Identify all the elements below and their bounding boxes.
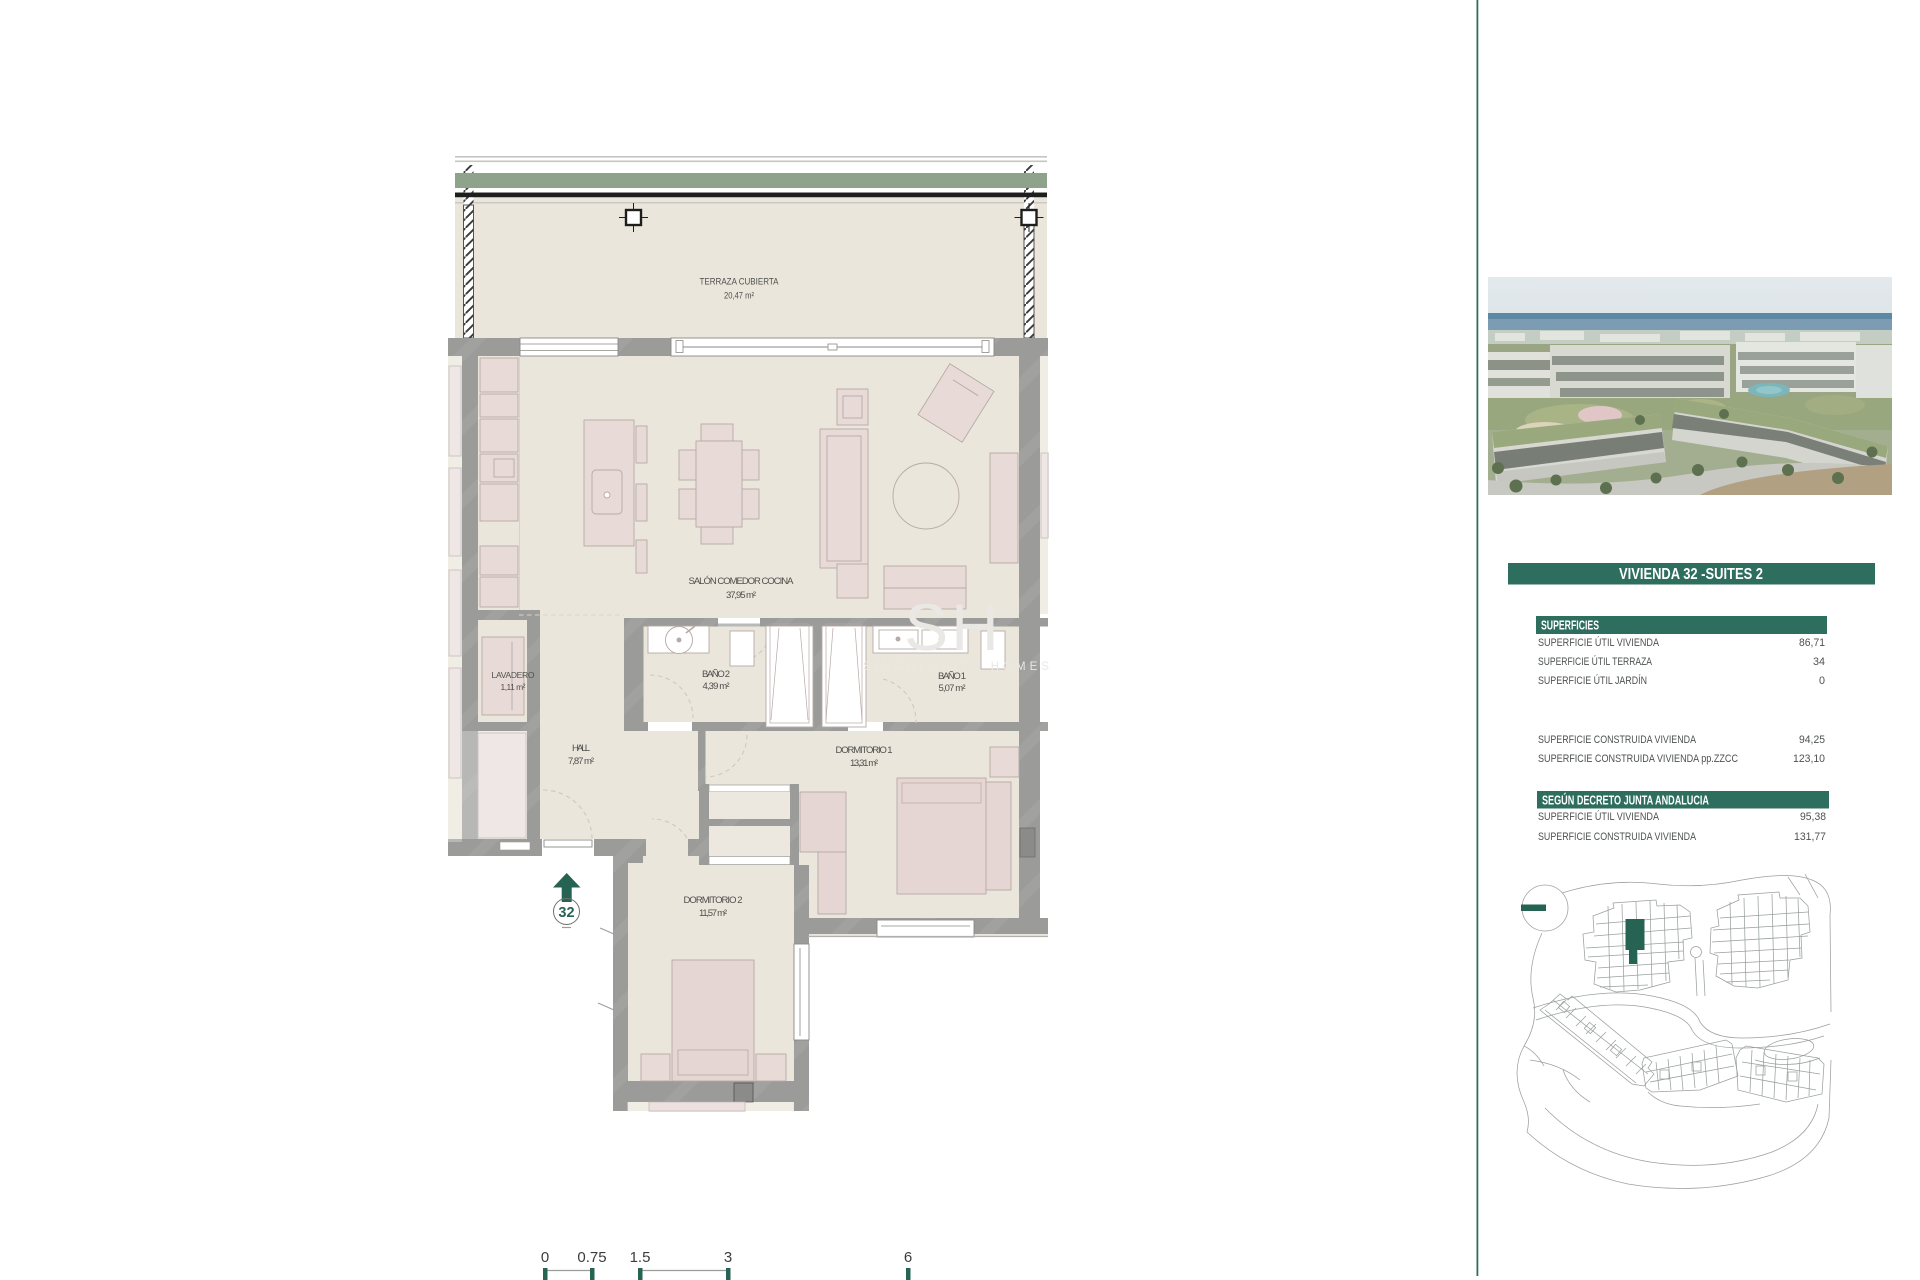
svg-text:HALL: HALL [572,743,590,754]
svg-text:SUPERFICIES: SUPERFICIES [1541,618,1599,633]
svg-text:SUPERFICIE ÚTIL VIVIENDA: SUPERFICIE ÚTIL VIVIENDA [1538,636,1660,649]
svg-text:SUPERFICIE CONSTRUIDA VIVIENDA: SUPERFICIE CONSTRUIDA VIVIENDA pp.ZZCC [1538,753,1738,765]
svg-text:0: 0 [1819,675,1825,687]
svg-text:DORMITORIO 2: DORMITORIO 2 [684,895,743,906]
svg-text:VIVIENDA 32 -SUITES 2: VIVIENDA 32 -SUITES 2 [1619,566,1763,583]
svg-text:32: 32 [558,905,574,921]
svg-text:SUPERFICIE ÚTIL TERRAZA: SUPERFICIE ÚTIL TERRAZA [1538,655,1653,668]
svg-text:4,39 m²: 4,39 m² [703,681,730,692]
svg-text:13,31 m²: 13,31 m² [850,758,878,769]
svg-text:SUPERFICIE CONSTRUIDA VIVIENDA: SUPERFICIE CONSTRUIDA VIVIENDA [1538,734,1697,746]
svg-text:6: 6 [904,1249,912,1266]
svg-text:34: 34 [1813,656,1825,668]
svg-text:0.75: 0.75 [577,1249,606,1266]
svg-text:SUPERFICIE ÚTIL VIVIENDA: SUPERFICIE ÚTIL VIVIENDA [1538,810,1660,823]
svg-text:131,77: 131,77 [1794,831,1826,843]
svg-text:5,07 m²: 5,07 m² [939,683,966,694]
svg-text:SEGÚN DECRETO JUNTA ANDALUCIA: SEGÚN DECRETO JUNTA ANDALUCIA [1542,793,1709,808]
svg-text:SINGULARITY HOMES: SINGULARITY HOMES [863,661,1053,673]
svg-text:20,47 m²: 20,47 m² [724,291,754,302]
svg-text:123,10: 123,10 [1793,753,1825,765]
svg-text:TERRAZA CUBIERTA: TERRAZA CUBIERTA [700,277,780,288]
svg-text:LAVADERO: LAVADERO [492,670,535,680]
svg-text:95,38: 95,38 [1800,811,1826,823]
svg-text:SUPERFICIE CONSTRUIDA VIVIENDA: SUPERFICIE CONSTRUIDA VIVIENDA [1538,831,1697,843]
svg-text:DORMITORIO 1: DORMITORIO 1 [836,745,893,756]
svg-text:BAÑO 2: BAÑO 2 [702,669,730,680]
svg-text:3: 3 [724,1249,732,1266]
svg-text:7,87 m²: 7,87 m² [568,756,594,767]
svg-text:0: 0 [541,1249,549,1266]
svg-text:SH: SH [904,590,1002,664]
svg-text:1,11 m²: 1,11 m² [501,682,526,692]
svg-text:SALÓN COMEDOR COCINA: SALÓN COMEDOR COCINA [689,576,795,587]
svg-text:94,25: 94,25 [1799,734,1825,746]
svg-text:1.5: 1.5 [630,1249,651,1266]
svg-text:11,57 m²: 11,57 m² [699,908,727,919]
svg-text:37,95 m²: 37,95 m² [726,590,756,601]
svg-text:SUPERFICIE ÚTIL JARDÍN: SUPERFICIE ÚTIL JARDÍN [1538,674,1647,687]
svg-text:86,71: 86,71 [1799,637,1825,649]
